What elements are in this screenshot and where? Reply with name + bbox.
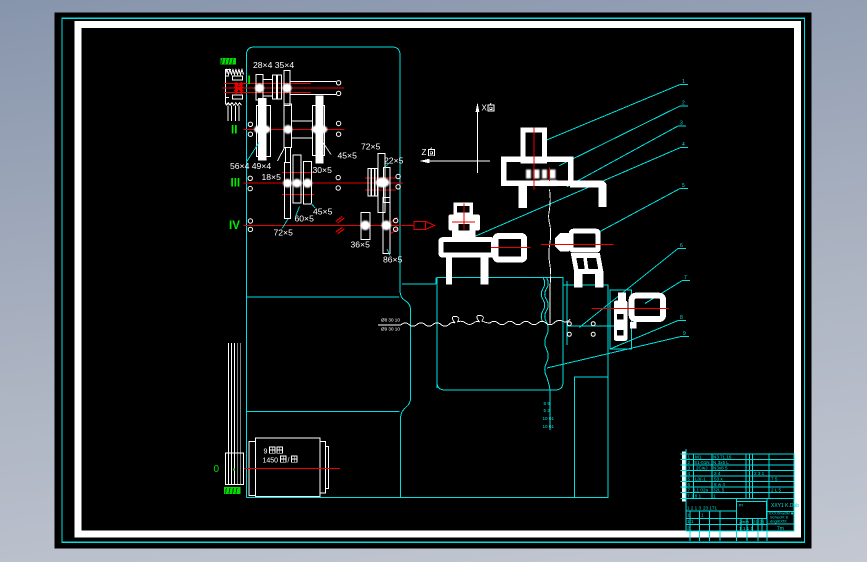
svg-text:2mm: 2mm xyxy=(739,520,749,525)
svg-text:7: 7 xyxy=(688,488,691,493)
svg-text:Z: Z xyxy=(422,148,427,157)
svg-text:2CwJ: 2CwJ xyxy=(696,466,708,471)
svg-text:72×5: 72×5 xyxy=(361,142,381,152)
svg-text:7 5: 7 5 xyxy=(771,477,778,482)
svg-text:N3x8 5: N3x8 5 xyxy=(713,466,728,471)
svg-text:21 21: 21 21 xyxy=(753,520,765,525)
svg-text:10 01: 10 01 xyxy=(543,424,555,429)
svg-text:30×5: 30×5 xyxy=(313,165,333,175)
svg-text:0: 0 xyxy=(214,464,220,475)
svg-text:N3 7L 16: N3 7L 16 xyxy=(713,455,732,460)
svg-text:60×5: 60×5 xyxy=(295,214,315,224)
svg-text:5: 5 xyxy=(688,477,691,482)
svg-text:2: 2 xyxy=(688,460,691,465)
svg-text:3: 3 xyxy=(680,121,683,127)
svg-text:8 9: 8 9 xyxy=(544,401,551,406)
svg-text:7: 7 xyxy=(684,275,687,281)
svg-text:4: 4 xyxy=(682,142,685,148)
svg-text:L0(-1: L0(-1 xyxy=(695,477,706,482)
svg-text:4: 4 xyxy=(688,471,691,476)
svg-text:IV: IV xyxy=(229,220,240,232)
svg-text:1: 1 xyxy=(687,513,690,518)
svg-text:7m: 7m xyxy=(777,526,784,532)
svg-text:45×5: 45×5 xyxy=(338,151,358,161)
svg-text:6: 6 xyxy=(680,243,683,249)
svg-text:2 4: 2 4 xyxy=(714,471,721,476)
svg-text:S1-01N: S1-01N xyxy=(694,460,710,465)
svg-text:1: 1 xyxy=(682,79,685,85)
svg-text:1450: 1450 xyxy=(263,458,279,465)
svg-text:L1 02a: L1 02a xyxy=(694,488,708,493)
svg-text:23 171: 23 171 xyxy=(703,506,717,511)
svg-text:XXY1 K.Dab: XXY1 K.Dab xyxy=(771,503,799,509)
svg-text:2 3 1: 2 3 1 xyxy=(754,471,765,476)
svg-text:86×5: 86×5 xyxy=(383,255,403,265)
svg-text:dnglKXfX: dnglKXfX xyxy=(770,519,787,524)
svg-text:II: II xyxy=(231,125,237,137)
svg-text:Ø8 30 10: Ø8 30 10 xyxy=(381,318,400,323)
svg-text:1: 1 xyxy=(701,513,704,518)
svg-text:I: I xyxy=(248,75,251,87)
svg-text:28×4 35×4: 28×4 35×4 xyxy=(253,60,294,70)
svg-text:5: 5 xyxy=(682,183,685,189)
svg-text:10 01: 10 01 xyxy=(543,416,555,421)
svg-text:2: 2 xyxy=(682,101,685,107)
svg-text:1 1: 1 1 xyxy=(687,519,694,524)
svg-text:m: m xyxy=(739,503,743,508)
svg-text:7 1 8 1: 7 1 8 1 xyxy=(687,494,701,499)
svg-text:9: 9 xyxy=(264,449,268,456)
svg-text:M1: M1 xyxy=(695,455,702,460)
svg-text:1 1 1 1: 1 1 1 1 xyxy=(739,526,753,531)
svg-text:9: 9 xyxy=(683,331,686,337)
svg-text:2 L 5: 2 L 5 xyxy=(771,488,781,493)
svg-text:45×5: 45×5 xyxy=(313,207,333,217)
svg-text:18×5: 18×5 xyxy=(262,172,282,182)
svg-text:36×5: 36×5 xyxy=(351,240,371,250)
svg-text:32L 5: 32L 5 xyxy=(713,488,725,493)
svg-text:3: 3 xyxy=(688,466,691,471)
svg-text:1: 1 xyxy=(688,455,691,460)
svg-text:8 w 4: 8 w 4 xyxy=(714,482,725,487)
svg-text:/: / xyxy=(288,458,290,465)
svg-text:1 2 1 3: 1 2 1 3 xyxy=(687,506,701,511)
svg-text:56×4 49×4: 56×4 49×4 xyxy=(230,161,271,171)
svg-text:8: 8 xyxy=(680,315,683,321)
svg-text:N 3x5 L: N 3x5 L xyxy=(713,460,729,465)
svg-text:X: X xyxy=(482,104,488,113)
svg-text:53 x: 53 x xyxy=(714,477,723,482)
svg-text:2: 2 xyxy=(687,526,690,531)
svg-text:5 2: 5 2 xyxy=(544,408,551,413)
svg-text:6: 6 xyxy=(688,482,691,487)
svg-text:Ø9 30 10: Ø9 30 10 xyxy=(381,327,400,332)
svg-text:1: 1 xyxy=(713,494,716,499)
svg-text:III: III xyxy=(231,178,241,190)
svg-text:22×5: 22×5 xyxy=(384,156,404,166)
svg-text:72×5: 72×5 xyxy=(274,228,294,238)
